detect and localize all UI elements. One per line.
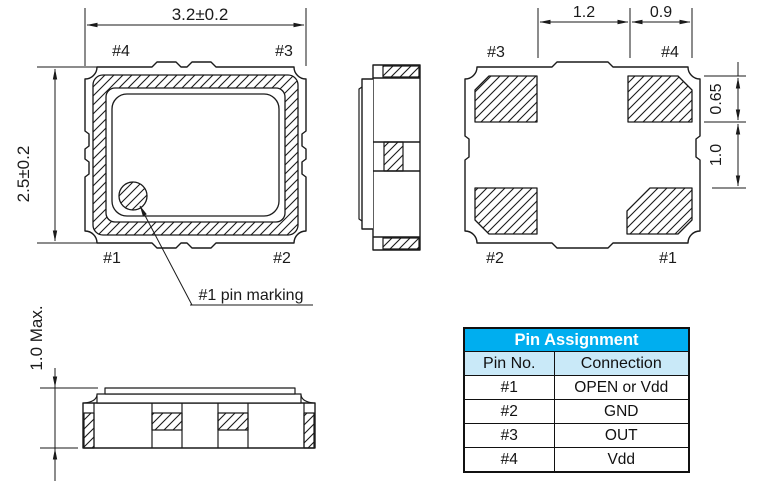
- top-view-pin2-label: #2: [273, 250, 291, 267]
- pin-connection-cell: GND: [554, 400, 689, 424]
- pad-2: [475, 188, 537, 234]
- bottom-view-pin1-label: #1: [659, 250, 677, 267]
- table-row: #1 OPEN or Vdd: [464, 376, 689, 400]
- package-bottom-view: [465, 62, 700, 248]
- dim-text-pad-gap: 1.0: [708, 144, 725, 166]
- dim-text-max-height: 1.0 Max.: [27, 305, 46, 370]
- side-view-castellation: [384, 142, 403, 171]
- front-view-castellation-left: [152, 413, 182, 430]
- bottom-view-pin3-label: #3: [487, 44, 505, 61]
- front-view-fillet-right: [301, 395, 314, 403]
- dim-text-center-span: 1.2: [573, 4, 595, 21]
- dim-text-pad-height: 0.65: [708, 83, 725, 114]
- package-front-view: [83, 388, 315, 448]
- dim-text-height: 2.5±0.2: [14, 146, 33, 203]
- top-view-pin1-label: #1: [103, 250, 121, 267]
- pin-number-cell: #4: [464, 448, 554, 473]
- pin-number-cell: #1: [464, 376, 554, 400]
- side-view-pad-top: [383, 66, 419, 77]
- pin1-marking-circle: [119, 182, 147, 210]
- package-top-view: [85, 62, 306, 248]
- front-view-castellation-right: [218, 413, 248, 430]
- datasheet-dimension-drawing: 3.2±0.2 2.5±0.2 #4 #3 #1 #2 #1 pin marki…: [0, 0, 779, 483]
- bottom-view-pin4-label: #4: [661, 44, 679, 61]
- pin-table-col-pin-no: Pin No.: [464, 352, 554, 376]
- package-side-view: [359, 65, 420, 250]
- pin-connection-cell: OUT: [554, 424, 689, 448]
- pad-3: [475, 76, 537, 122]
- top-view-pin3-label: #3: [275, 43, 293, 60]
- pin1-marking-label: #1 pin marking: [199, 287, 304, 304]
- front-view-fillet-left: [84, 395, 97, 403]
- table-row: #2 GND: [464, 400, 689, 424]
- side-view-pad-bottom: [383, 238, 419, 249]
- side-view-lid: [362, 79, 373, 229]
- top-view-pin4-label: #4: [112, 43, 130, 60]
- pin-connection-cell: Vdd: [554, 448, 689, 473]
- pin-number-cell: #2: [464, 400, 554, 424]
- front-view-endcap-left: [84, 413, 94, 448]
- dim-text-pad-width: 0.9: [650, 4, 672, 21]
- pin-table-col-connection: Connection: [554, 352, 689, 376]
- pin-number-cell: #3: [464, 424, 554, 448]
- dim-text-width: 3.2±0.2: [172, 5, 229, 24]
- front-view-endcap-right: [304, 413, 314, 448]
- pin-assignment-table: Pin Assignment Pin No. Connection #1 OPE…: [463, 327, 690, 473]
- pad-4: [628, 76, 692, 122]
- front-view-lid-base: [97, 394, 301, 403]
- bottom-view-pin2-label: #2: [486, 250, 504, 267]
- pin-connection-cell: OPEN or Vdd: [554, 376, 689, 400]
- table-row: #4 Vdd: [464, 448, 689, 473]
- front-view-lid-top: [105, 388, 295, 394]
- pin-table-title: Pin Assignment: [464, 328, 689, 352]
- table-row: #3 OUT: [464, 424, 689, 448]
- front-view-body: [83, 403, 315, 448]
